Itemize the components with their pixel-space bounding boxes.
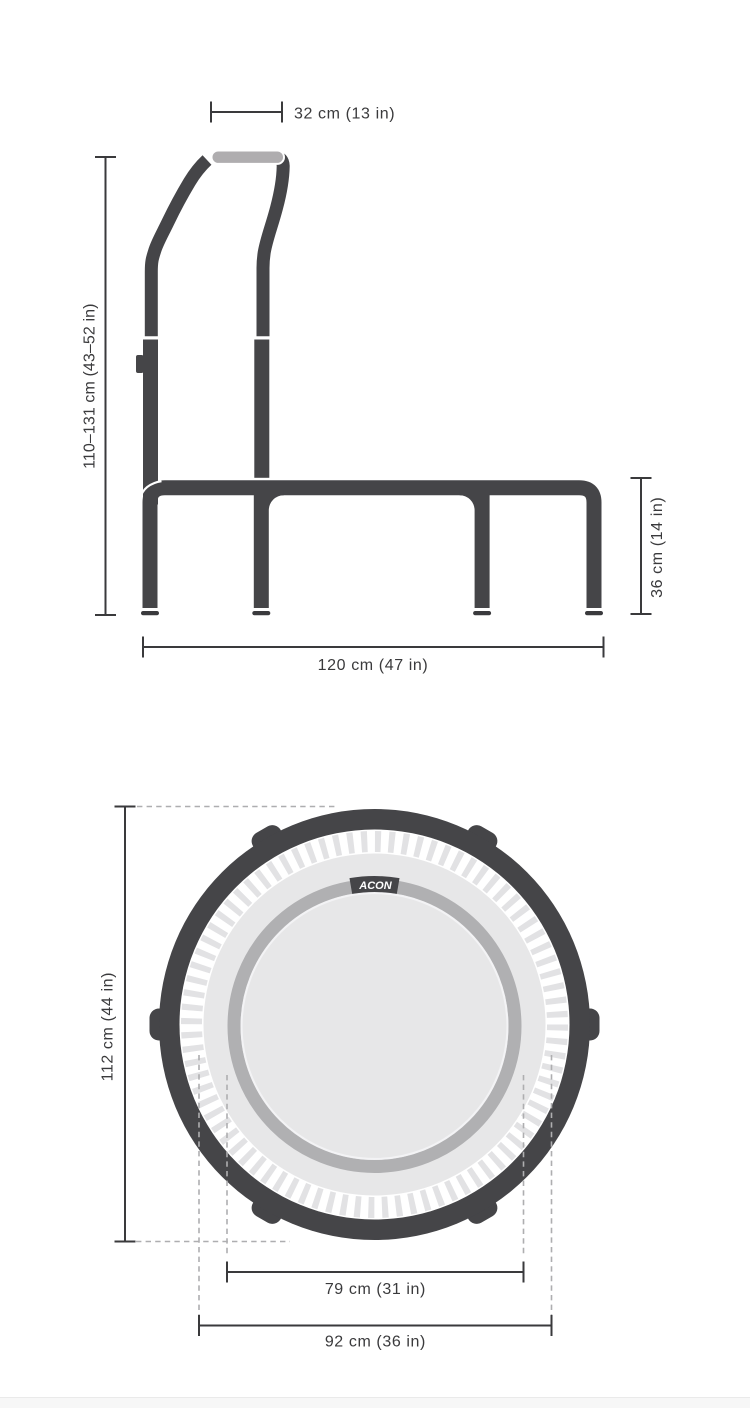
svg-text:79 cm (31 in): 79 cm (31 in) bbox=[325, 1281, 426, 1298]
svg-text:112 cm (44 in): 112 cm (44 in) bbox=[99, 972, 116, 1081]
svg-text:110–131 cm (43–52 in): 110–131 cm (43–52 in) bbox=[82, 303, 99, 468]
svg-text:92 cm (36 in): 92 cm (36 in) bbox=[325, 1334, 426, 1351]
svg-text:36 cm (14 in): 36 cm (14 in) bbox=[649, 497, 666, 598]
svg-text:120 cm (47 in): 120 cm (47 in) bbox=[318, 657, 429, 674]
svg-text:ACON: ACON bbox=[358, 880, 392, 892]
svg-text:32 cm (13 in): 32 cm (13 in) bbox=[294, 105, 395, 122]
